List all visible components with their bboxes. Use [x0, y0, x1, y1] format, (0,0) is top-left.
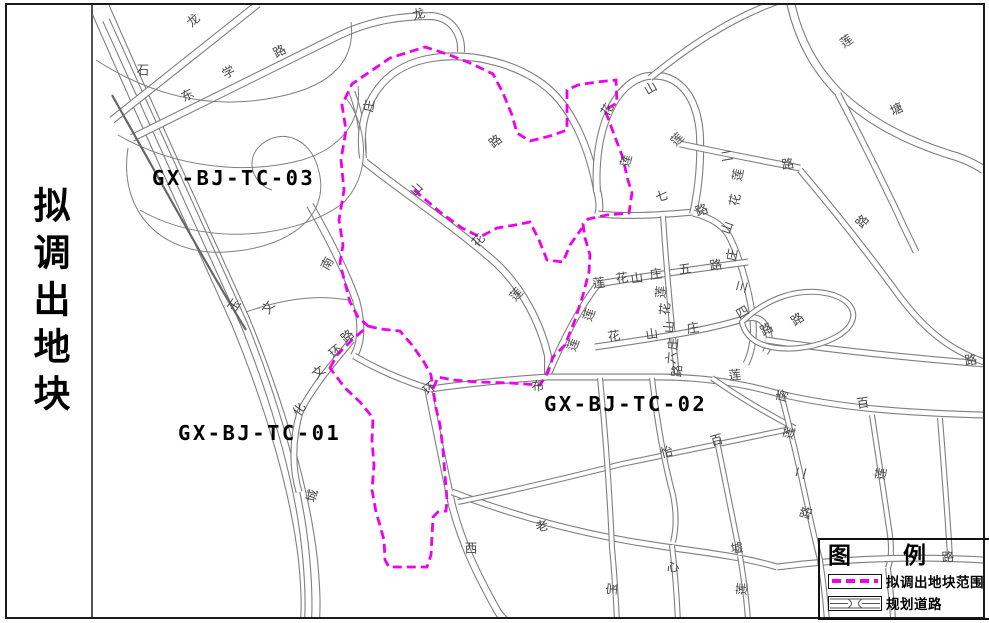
road-label: 莲	[618, 152, 635, 168]
legend-title: 图 例	[828, 542, 989, 568]
road-label: 六	[664, 351, 679, 365]
road-fill	[458, 428, 795, 502]
road-label: 莲	[735, 582, 750, 596]
road-label: 路	[780, 155, 795, 172]
planned-road-icon	[830, 598, 880, 609]
parcel-boundary	[414, 190, 582, 262]
road-casing	[365, 162, 548, 376]
road-label: 庄	[649, 266, 663, 283]
road-label: 龙	[184, 11, 203, 30]
road-label: 宝	[605, 582, 620, 596]
road-label: 文	[258, 297, 278, 316]
road-label: 环	[326, 342, 345, 361]
road-label: 南	[773, 388, 791, 404]
road-label: 路	[669, 364, 685, 378]
road-label: 龙	[411, 6, 427, 23]
road-label: 城	[304, 487, 321, 503]
parcel-label: GX-BJ-TC-03	[152, 166, 315, 190]
road-label: 石	[137, 63, 150, 77]
sheet-title: 拟调出地块	[26, 186, 70, 421]
legend-item-label: 规划道路	[886, 593, 942, 613]
road-label: 花	[726, 192, 743, 207]
road-label: 墟	[730, 541, 744, 557]
road-label: 莲	[873, 466, 889, 481]
road-label: 庄	[723, 247, 740, 262]
legend-item-boundary: 拟调出地块范围	[828, 572, 989, 590]
road-label: 山	[642, 79, 660, 97]
road-label: 东	[179, 86, 197, 104]
road-label: 布	[531, 379, 545, 394]
road-label: 庄	[665, 337, 681, 351]
road-fill	[717, 441, 740, 555]
parcel-label: GX-BJ-TC-02	[544, 392, 707, 416]
road-label: 莲	[728, 368, 742, 383]
road-fill	[354, 356, 430, 389]
road-label: 学	[219, 62, 237, 81]
road-label: 花	[607, 328, 621, 345]
road-label: 心	[665, 559, 680, 575]
legend-item-label: 拟调出地块范围	[886, 571, 984, 591]
parcel-label: GX-BJ-TC-01	[178, 421, 341, 445]
road-label: 莲	[565, 336, 583, 353]
road-label: 七	[654, 188, 670, 205]
road-label: 路	[852, 211, 872, 231]
magenta-dash-icon	[832, 579, 878, 583]
road-label: 山	[662, 320, 677, 334]
road-label: 山	[719, 219, 736, 236]
road-label: 花	[657, 302, 673, 316]
road-label: 莲	[730, 167, 746, 182]
road-label: 五	[678, 262, 692, 278]
road-label: 莲	[837, 32, 856, 51]
road-label: 庄	[686, 320, 700, 337]
highway-center-line	[112, 95, 246, 330]
road-casing	[650, 2, 776, 78]
boundary-swatch-icon	[828, 574, 882, 589]
plan-sheet: 龙路石学东龙庄路山花莲山花莲莲七路山庄三莲塘二路莲花路莲花山庄五路莲花山庄六路花…	[0, 0, 989, 623]
road-label: 花	[615, 270, 629, 287]
road-casing	[132, 16, 461, 138]
road-label: 塘	[888, 99, 906, 118]
road-swatch-icon	[828, 596, 882, 611]
road-label: 莲	[581, 306, 599, 323]
road-label: 莲	[654, 285, 669, 299]
legend-item-road: 规划道路	[828, 594, 989, 612]
road-fill	[940, 418, 950, 558]
road-label: 怡	[659, 444, 675, 461]
road-label: 莲	[592, 275, 607, 291]
road-label: 路	[709, 256, 724, 273]
road-label: 路	[338, 326, 358, 346]
road-fill	[790, 0, 984, 170]
road-label: 老	[534, 518, 549, 534]
road-label: 庄	[360, 98, 377, 113]
road-label: 路	[788, 309, 807, 329]
road-casing	[790, 0, 984, 170]
road-label: 路	[486, 131, 506, 151]
road-label: 二	[719, 148, 734, 164]
road-label: 文	[309, 362, 329, 382]
road-fill	[132, 16, 461, 138]
map-canvas: 龙路石学东龙庄路山花莲山花莲莲七路山庄三莲塘二路莲花路莲花山庄五路莲花山庄六路花…	[0, 0, 989, 623]
road-label: 百	[856, 396, 870, 412]
road-label: 山	[630, 271, 644, 287]
road-label: 西	[465, 541, 478, 555]
road-label: 路	[964, 351, 979, 368]
parcel-boundary	[330, 47, 632, 567]
road-label: 山	[645, 327, 659, 343]
road-label: 二	[793, 465, 810, 481]
road-fill	[365, 162, 548, 376]
legend: 图 例 拟调出地块范围 规划道路	[818, 538, 989, 620]
